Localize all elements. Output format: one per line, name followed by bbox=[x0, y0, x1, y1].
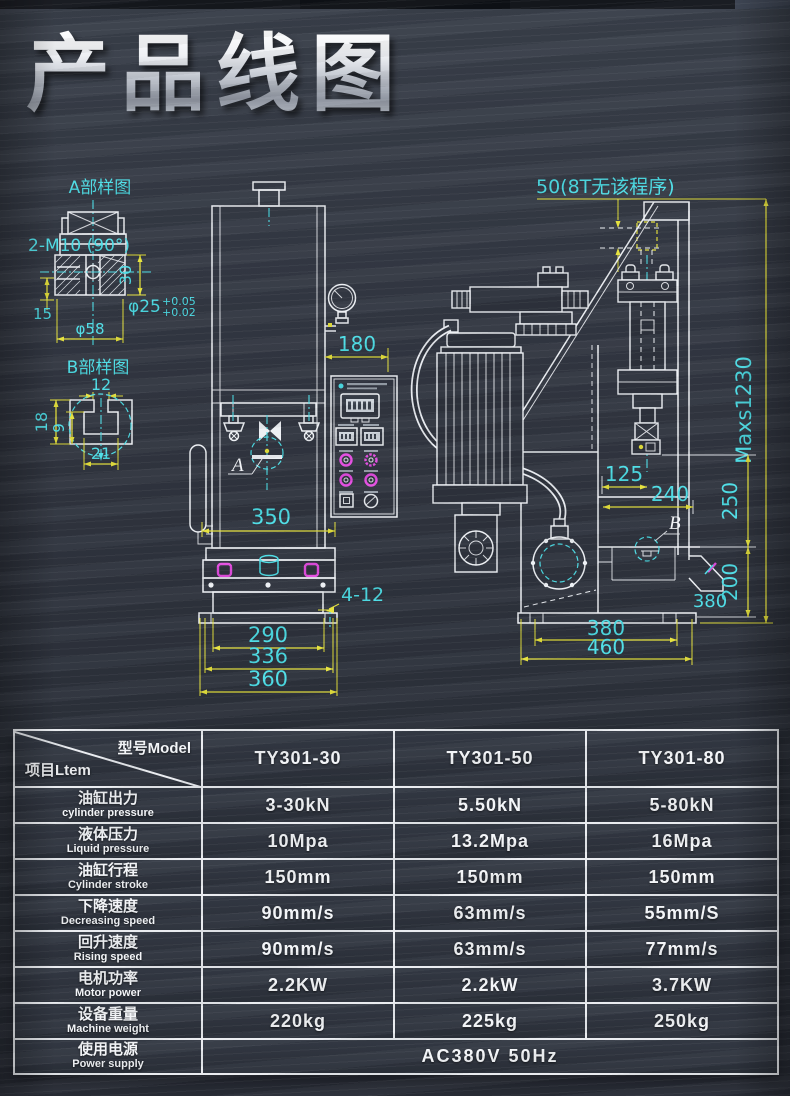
cell-rising-speed-50: 63mm/s bbox=[395, 932, 585, 966]
dim-380-right-label: 380 bbox=[693, 591, 727, 612]
panel-knob-1 bbox=[341, 455, 352, 466]
dim-21-label: 21 bbox=[91, 444, 111, 463]
stroke-note-label: 50(8T无该程序) bbox=[536, 176, 675, 198]
row-label-rising-speed: 回升速度 Rising speed bbox=[15, 932, 201, 966]
cell-decreasing-speed-50: 63mm/s bbox=[395, 896, 585, 930]
panel-knob-4 bbox=[366, 475, 377, 486]
panel-knob-2 bbox=[366, 455, 377, 466]
row-label-machine-weight: 设备重量 Machine weight bbox=[15, 1004, 201, 1038]
dim-360-label: 360 bbox=[248, 667, 288, 691]
panel-square-button bbox=[340, 494, 353, 507]
model-header-ty301-30: TY301-30 bbox=[203, 731, 393, 786]
dim-350-label: 350 bbox=[251, 505, 291, 529]
holes-note-label: 4-12 bbox=[341, 584, 384, 606]
dim-max-height-label: Maxs1230 bbox=[732, 356, 756, 464]
detail-b-view: B部样图 12 18 9 21 bbox=[32, 358, 132, 470]
cell-cylinder-stroke-80: 150mm bbox=[587, 860, 777, 894]
dim-336-label: 336 bbox=[248, 644, 288, 668]
top-strip-dark-block bbox=[300, 0, 510, 9]
page-title: 产品线图 bbox=[26, 28, 406, 120]
cell-rising-speed-80: 77mm/s bbox=[587, 932, 777, 966]
detail-a-view: A部样图 2-M10 (90°) 30 1 bbox=[28, 178, 196, 348]
dim-125-label: 125 bbox=[605, 462, 643, 486]
t-slot-right bbox=[305, 564, 318, 576]
corner-model-label: 型号Model bbox=[118, 737, 191, 758]
detail-a-title: A部样图 bbox=[69, 178, 132, 198]
dim-dia58-label: φ58 bbox=[76, 320, 105, 338]
dim-dia25-tol-lower: +0.02 bbox=[162, 306, 196, 319]
cell-decreasing-speed-80: 55mm/S bbox=[587, 896, 777, 930]
top-edge-strip bbox=[0, 0, 790, 9]
cell-rising-speed-30: 90mm/s bbox=[203, 932, 393, 966]
cell-power-supply-merged: AC380V 50Hz bbox=[203, 1040, 777, 1073]
cell-machine-weight-50: 225kg bbox=[395, 1004, 585, 1038]
spec-table: 型号Model 项目Ltem TY301-30 TY301-50 TY301-8… bbox=[13, 729, 779, 1075]
dim-15-label: 15 bbox=[33, 305, 52, 323]
center-die-boss bbox=[260, 556, 278, 576]
cell-cylinder-pressure-80: 5-80kN bbox=[587, 788, 777, 822]
row-label-decreasing-speed: 下降速度 Decreasing speed bbox=[15, 896, 201, 930]
cell-motor-power-30: 2.2KW bbox=[203, 968, 393, 1002]
row-label-motor-power: 电机功率 Motor power bbox=[15, 968, 201, 1002]
cell-liquid-pressure-30: 10Mpa bbox=[203, 824, 393, 858]
side-handle bbox=[190, 445, 206, 532]
cell-motor-power-80: 3.7KW bbox=[587, 968, 777, 1002]
control-panel bbox=[331, 376, 397, 517]
dim-dia25-label: φ25 bbox=[128, 297, 161, 317]
model-header-ty301-80: TY301-80 bbox=[587, 731, 777, 786]
dim-9-label: 9 bbox=[50, 423, 68, 433]
cell-liquid-pressure-50: 13.2Mpa bbox=[395, 824, 585, 858]
dim-12-label: 12 bbox=[91, 375, 111, 394]
detail-a-thread-note: 2-M10 (90°) bbox=[28, 236, 130, 256]
cell-cylinder-pressure-30: 3-30kN bbox=[203, 788, 393, 822]
model-header-ty301-50: TY301-50 bbox=[395, 731, 585, 786]
row-label-power-supply: 使用电源 Power supply bbox=[15, 1040, 201, 1073]
t-slot-left bbox=[218, 564, 231, 576]
dim-240-label: 240 bbox=[651, 482, 689, 506]
ram-bolt-left bbox=[224, 416, 244, 441]
row-label-liquid-pressure: 液体压力 Liquid pressure bbox=[15, 824, 201, 858]
cell-machine-weight-30: 220kg bbox=[203, 1004, 393, 1038]
pump-unit bbox=[455, 515, 497, 572]
cell-motor-power-50: 2.2kW bbox=[395, 968, 585, 1002]
cell-cylinder-stroke-30: 150mm bbox=[203, 860, 393, 894]
dim-18-label: 18 bbox=[32, 412, 51, 432]
side-view: 50(8T无该程序) Maxs1230 bbox=[414, 176, 773, 665]
dim-180-label: 180 bbox=[338, 332, 376, 356]
pressure-gauge bbox=[325, 285, 356, 332]
cell-decreasing-speed-30: 90mm/s bbox=[203, 896, 393, 930]
marker-a-label: A bbox=[230, 455, 244, 476]
row-label-cylinder-stroke: 油缸行程 Cylinder stroke bbox=[15, 860, 201, 894]
top-strip-blue-block bbox=[735, 0, 790, 9]
cell-machine-weight-80: 250kg bbox=[587, 1004, 777, 1038]
corner-item-label: 项目Ltem bbox=[25, 759, 91, 780]
cad-line-drawing: A部样图 2-M10 (90°) 30 1 bbox=[0, 160, 790, 720]
tank-flange bbox=[531, 519, 587, 589]
dim-250-label: 250 bbox=[718, 482, 742, 520]
panel-knob-3 bbox=[341, 475, 352, 486]
dim-30-label: 30 bbox=[116, 265, 135, 285]
cell-liquid-pressure-80: 16Mpa bbox=[587, 824, 777, 858]
product-line-drawing-page: 产品线图 A部样图 2-M10 (90°) 30 bbox=[0, 0, 790, 1096]
hydraulic-valve-block bbox=[444, 267, 588, 335]
cell-cylinder-stroke-50: 150mm bbox=[395, 860, 585, 894]
motor-unit bbox=[433, 333, 527, 515]
row-label-cylinder-pressure: 油缸出力 cylinder pressure bbox=[15, 788, 201, 822]
cell-cylinder-pressure-50: 5.50kN bbox=[395, 788, 585, 822]
marker-b-label: B bbox=[669, 513, 681, 534]
dim-460-label: 460 bbox=[587, 635, 625, 659]
front-view: A 180 bbox=[190, 182, 397, 696]
table-corner-cell: 型号Model 项目Ltem bbox=[15, 731, 201, 786]
hydraulic-cylinder bbox=[618, 265, 677, 454]
